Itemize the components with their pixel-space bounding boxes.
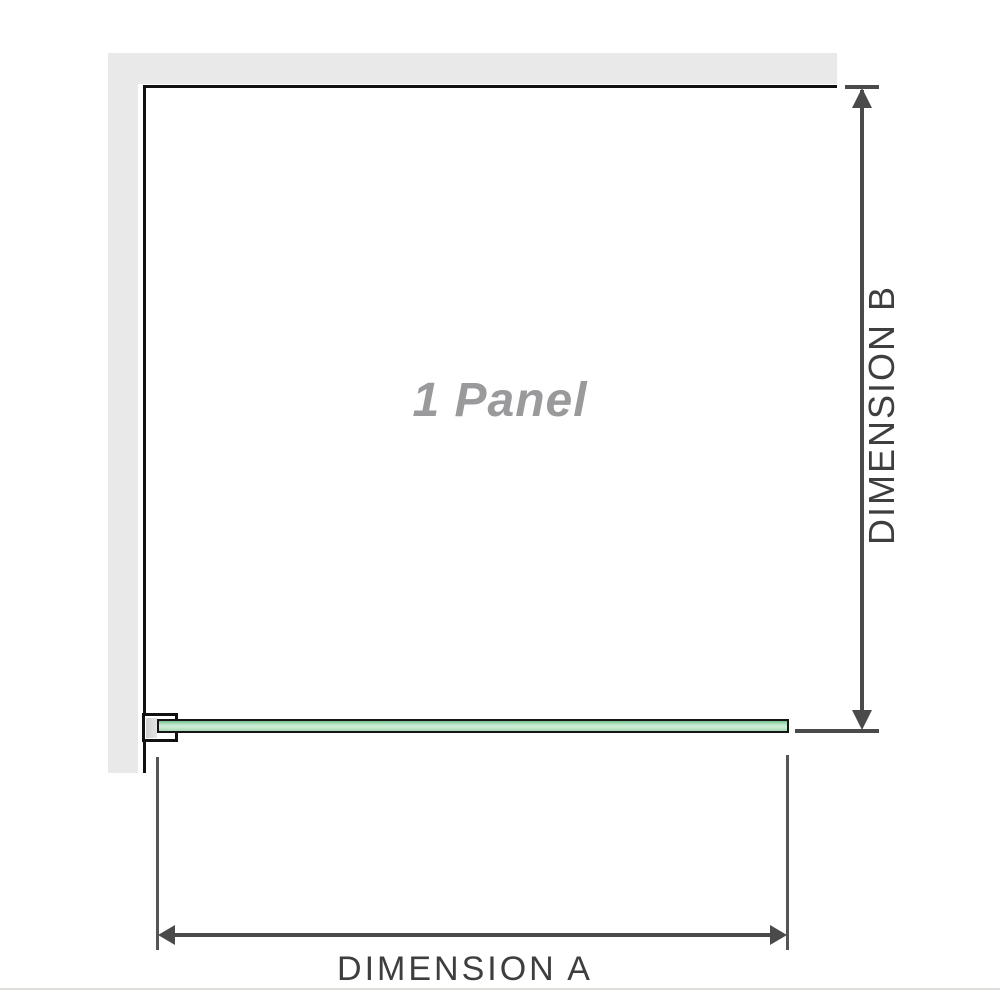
dimension-a-label: DIMENSION A — [265, 950, 665, 989]
arrow-up-icon — [852, 88, 872, 108]
glass-panel-bar — [157, 719, 789, 733]
panel-outline-top — [143, 85, 837, 88]
panel-count-label: 1 Panel — [340, 373, 660, 428]
arrow-left-icon — [158, 925, 175, 945]
dimension-a-line — [168, 933, 776, 937]
panel-outline-left — [143, 85, 146, 773]
dimension-diagram: 1 Panel DIMENSION B DIMENSION A — [0, 0, 1000, 1000]
wall-top-bar — [108, 53, 837, 84]
bottom-divider — [0, 988, 1000, 990]
bracket-anchor-block — [146, 718, 157, 738]
dimension-a-extension-right — [786, 755, 789, 950]
dimension-a-extension-left — [156, 757, 159, 950]
arrow-down-icon — [852, 710, 872, 730]
wall-left-bar — [108, 53, 138, 773]
dimension-b-label: DIMENSION B — [862, 215, 902, 615]
arrow-right-icon — [770, 925, 787, 945]
